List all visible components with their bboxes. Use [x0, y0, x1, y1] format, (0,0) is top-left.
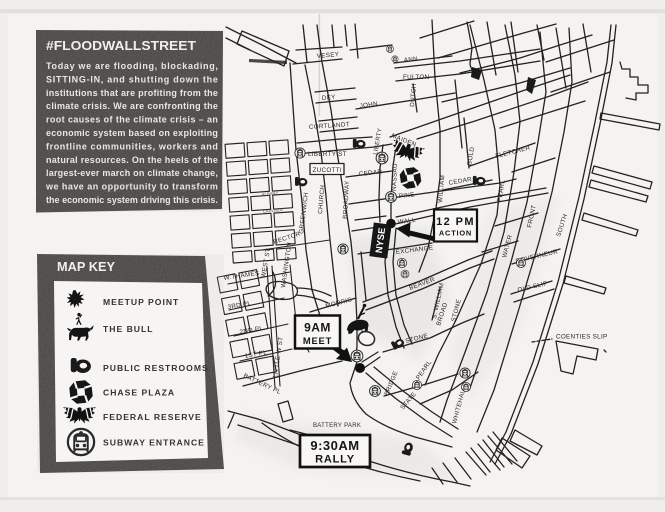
svg-text:root causes of the climate cri: root causes of the climate crisis – an [46, 115, 218, 125]
svg-text:frontline communities, workers: frontline communities, workers and [46, 141, 218, 151]
svg-text:SITTING-IN, and shutting down: SITTING-IN, and shutting down the [46, 74, 218, 84]
svg-text:natural resources. On the heel: natural resources. On the heels of the [46, 155, 218, 165]
svg-text:CHASE PLAZA: CHASE PLAZA [103, 388, 175, 398]
svg-text:NASSAU: NASSAU [391, 163, 399, 191]
svg-text:THE BULL: THE BULL [103, 324, 154, 334]
svg-text:PUBLIC RESTROOMS: PUBLIC RESTROOMS [103, 363, 209, 373]
svg-text:12 PM: 12 PM [436, 216, 475, 228]
svg-text:BATTERY PARK: BATTERY PARK [313, 423, 361, 429]
svg-text:COENTIES SLIP: COENTIES SLIP [556, 334, 608, 341]
svg-text:ACTION: ACTION [439, 229, 472, 238]
svg-text:DEY: DEY [322, 94, 337, 102]
svg-text:#FLOODWALLSTREET: #FLOODWALLSTREET [46, 39, 196, 53]
svg-text:largest-ever march on climate: largest-ever march on climate change, [46, 168, 218, 178]
svg-text:the economic system driving th: the economic system driving this crisis. [46, 195, 218, 205]
svg-text:LIBERTY ST: LIBERTY ST [308, 151, 347, 158]
svg-text:institutions that are profitin: institutions that are profiting from the [46, 88, 218, 98]
svg-text:Today we are flooding, blockad: Today we are flooding, blockading, [46, 61, 218, 71]
svg-text:we have an opportunity to tran: we have an opportunity to transform [45, 182, 218, 192]
svg-text:MEETUP POINT: MEETUP POINT [103, 297, 179, 307]
svg-text:SUBWAY ENTRANCE: SUBWAY ENTRANCE [103, 438, 205, 448]
svg-text:9AM: 9AM [304, 321, 331, 335]
svg-text:ZUCOTTI: ZUCOTTI [313, 167, 342, 174]
svg-text:economic system based on explo: economic system based on exploiting [46, 128, 218, 138]
svg-text:ANN: ANN [404, 56, 419, 64]
svg-text:9:30AM: 9:30AM [310, 438, 359, 453]
svg-text:FULTON: FULTON [403, 74, 430, 81]
svg-text:RALLY: RALLY [315, 454, 355, 466]
svg-text:climate crisis. We are confron: climate crisis. We are confronting the [46, 101, 218, 111]
svg-text:FEDERAL RESERVE: FEDERAL RESERVE [103, 412, 202, 422]
svg-text:MAP KEY: MAP KEY [57, 259, 115, 274]
svg-text:MEET: MEET [303, 335, 332, 346]
